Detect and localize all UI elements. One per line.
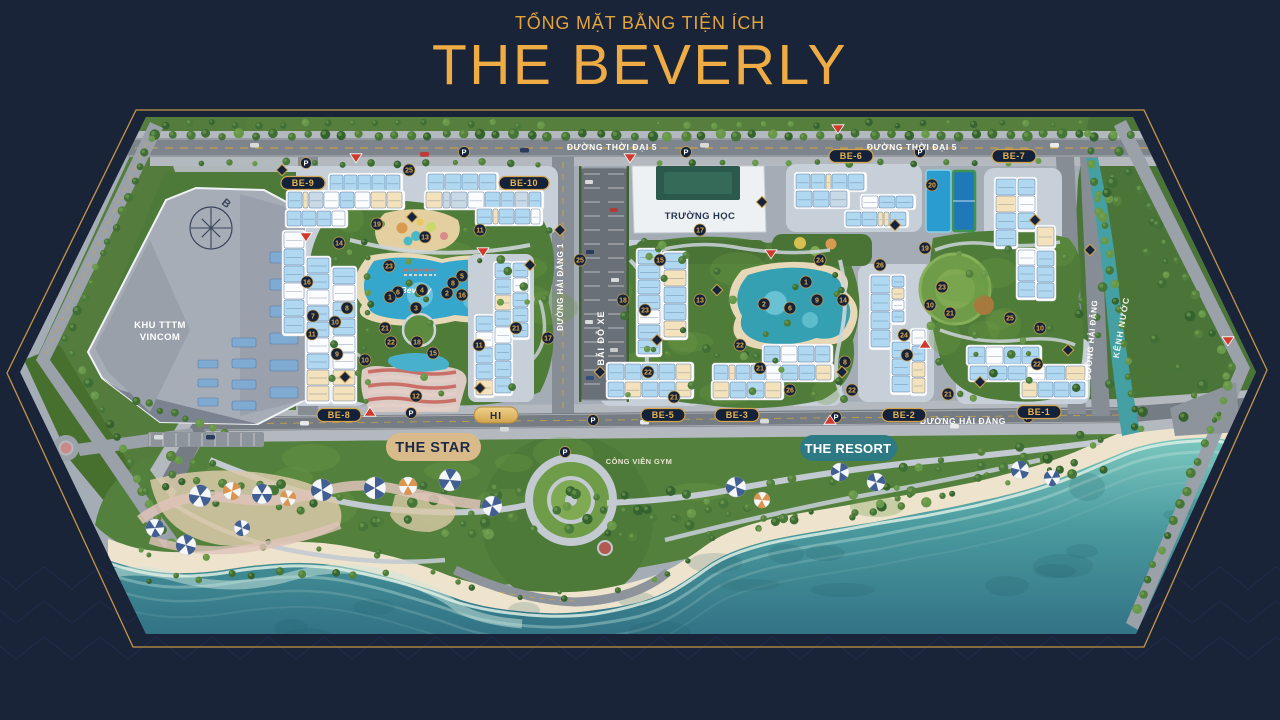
svg-text:13: 13 [421,235,429,242]
svg-text:21: 21 [512,326,520,333]
svg-text:22: 22 [1033,362,1041,369]
svg-text:ĐƯỜNG HẢI ĐĂNG 1: ĐƯỜNG HẢI ĐĂNG 1 [556,243,565,331]
svg-text:5: 5 [460,274,464,281]
svg-text:12: 12 [412,394,420,401]
svg-text:BE-7: BE-7 [1003,151,1026,161]
svg-text:25: 25 [576,258,584,265]
svg-text:HI: HI [490,411,502,422]
svg-text:BE-10: BE-10 [510,178,538,188]
svg-text:22: 22 [387,340,395,347]
svg-text:22: 22 [848,388,856,395]
svg-text:3: 3 [414,306,418,313]
svg-text:25: 25 [1006,316,1014,323]
svg-text:BE-9: BE-9 [292,178,315,188]
svg-text:6: 6 [788,306,792,313]
svg-text:BE-1: BE-1 [1028,407,1051,417]
svg-text:21: 21 [944,392,952,399]
svg-text:CÔNG VIÊN GYM: CÔNG VIÊN GYM [606,457,672,466]
svg-text:9: 9 [815,298,819,305]
svg-text:21: 21 [946,311,954,318]
svg-text:P: P [461,148,466,157]
svg-text:10: 10 [1036,326,1044,333]
svg-text:26: 26 [876,263,884,270]
svg-text:11: 11 [475,343,483,350]
svg-text:BE-8: BE-8 [328,410,351,420]
svg-text:KHU TTTM: KHU TTTM [134,320,186,331]
svg-text:BE-3: BE-3 [726,410,749,420]
svg-text:11: 11 [476,228,484,235]
svg-text:BÃI ĐỖ XE: BÃI ĐỖ XE [595,310,606,365]
svg-text:BE-6: BE-6 [840,151,863,161]
svg-text:23: 23 [385,264,393,271]
svg-text:17: 17 [696,228,704,235]
svg-text:TỔNG MẶT BẰNG TIỆN ÍCH: TỔNG MẶT BẰNG TIỆN ÍCH [515,12,765,33]
svg-text:16: 16 [303,280,311,287]
svg-text:19: 19 [373,222,381,229]
svg-text:20: 20 [928,183,936,190]
svg-text:THE BEVERLY: THE BEVERLY [432,33,848,97]
svg-text:22: 22 [736,343,744,350]
svg-text:BE-5: BE-5 [652,410,675,420]
svg-text:25: 25 [405,168,413,175]
svg-text:P: P [303,159,308,168]
svg-text:TRƯỜNG HỌC: TRƯỜNG HỌC [665,210,736,222]
svg-text:23: 23 [938,285,946,292]
svg-text:P: P [683,148,688,157]
svg-text:22: 22 [644,370,652,377]
svg-text:P: P [408,409,413,418]
svg-text:8: 8 [843,360,847,367]
svg-text:2: 2 [445,291,449,298]
svg-text:BE-2: BE-2 [893,410,916,420]
svg-text:24: 24 [900,333,908,340]
svg-text:23: 23 [641,308,649,315]
svg-text:19: 19 [921,246,929,253]
svg-text:P: P [833,413,838,422]
svg-text:21: 21 [381,326,389,333]
svg-text:13: 13 [696,298,704,305]
svg-text:4: 4 [420,288,424,295]
svg-text:7: 7 [311,314,315,321]
svg-text:THE RESORT: THE RESORT [805,441,892,456]
svg-text:18: 18 [413,340,421,347]
svg-text:15: 15 [656,258,664,265]
svg-text:P: P [590,416,595,425]
svg-text:6: 6 [396,290,400,297]
svg-text:ĐƯỜNG THỜI ĐẠI 5: ĐƯỜNG THỜI ĐẠI 5 [567,141,657,152]
svg-text:18: 18 [619,298,627,305]
svg-text:17: 17 [544,336,552,343]
svg-text:1: 1 [804,280,808,287]
svg-text:14: 14 [335,241,343,248]
svg-text:THE STAR: THE STAR [395,440,470,456]
svg-text:VINCOM: VINCOM [140,332,180,343]
svg-text:14: 14 [839,298,847,305]
svg-text:8: 8 [905,353,909,360]
svg-text:11: 11 [308,332,316,339]
svg-text:9: 9 [335,352,339,359]
svg-text:10: 10 [331,320,339,327]
svg-text:21: 21 [670,395,678,402]
svg-text:10: 10 [926,303,934,310]
svg-text:10: 10 [361,358,369,365]
svg-text:24: 24 [816,258,824,265]
svg-text:21: 21 [756,366,764,373]
svg-text:26: 26 [786,388,794,395]
svg-text:8: 8 [451,281,455,288]
svg-text:15: 15 [429,351,437,358]
svg-text:ĐƯỜNG HẢI ĐĂNG: ĐƯỜNG HẢI ĐĂNG [920,415,1006,426]
svg-text:1: 1 [388,295,392,302]
svg-text:8: 8 [345,306,349,313]
svg-text:16: 16 [458,293,466,300]
svg-text:P: P [562,448,567,457]
svg-text:2: 2 [762,302,766,309]
svg-text:ĐƯỜNG THỜI ĐẠI 5: ĐƯỜNG THỜI ĐẠI 5 [867,141,957,152]
